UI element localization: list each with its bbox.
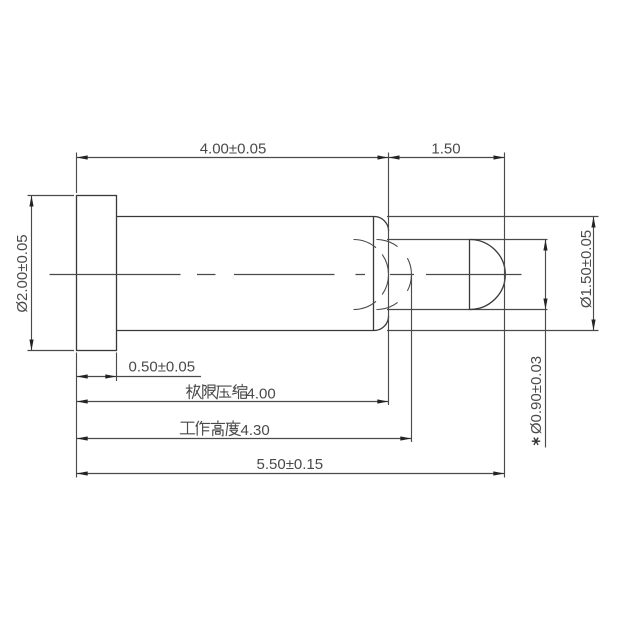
svg-text:1.50: 1.50 <box>431 140 460 157</box>
svg-text:4.00±0.05: 4.00±0.05 <box>200 140 267 157</box>
svg-text:Ø0.90±0.03: Ø0.90±0.03 <box>528 356 545 434</box>
svg-text:Ø2.00±0.05: Ø2.00±0.05 <box>14 234 31 312</box>
svg-text:0.50±0.05: 0.50±0.05 <box>129 358 196 375</box>
svg-text:4.00: 4.00 <box>247 385 276 402</box>
svg-text:Ø1.50±0.05: Ø1.50±0.05 <box>578 230 595 308</box>
svg-text:5.50±0.15: 5.50±0.15 <box>257 456 324 473</box>
svg-text:4.30: 4.30 <box>241 422 270 439</box>
